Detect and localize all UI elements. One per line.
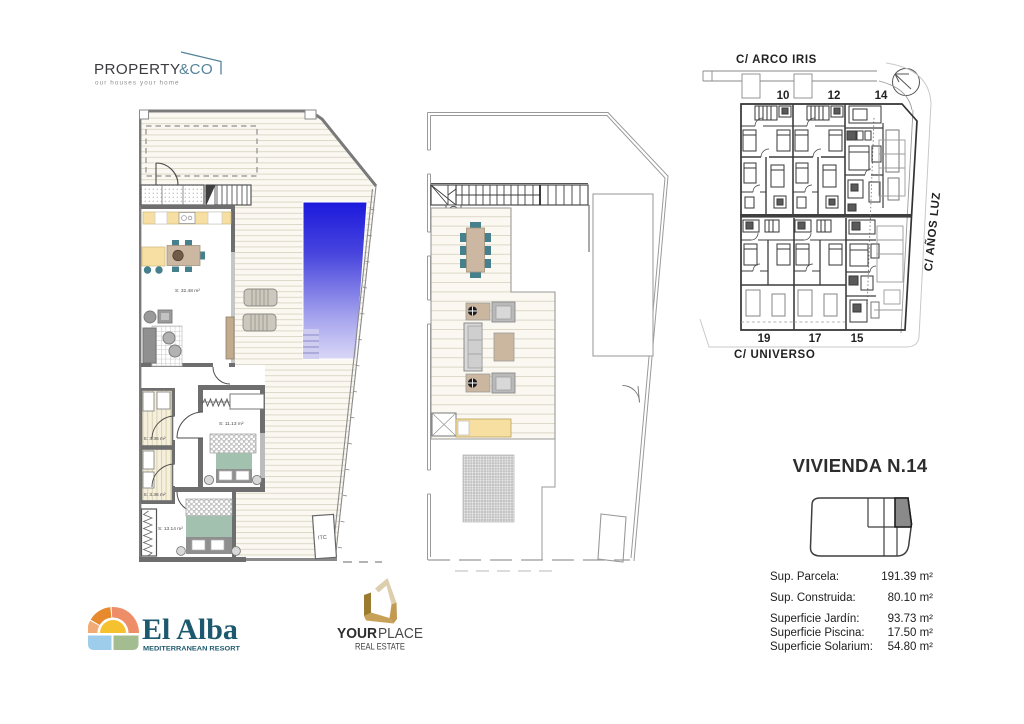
- svg-text:C/ AÑOS LUZ: C/ AÑOS LUZ: [922, 191, 943, 272]
- svg-text:PROPERTY: PROPERTY: [94, 61, 180, 78]
- svg-text:MEDITERRANEAN RESORT: MEDITERRANEAN RESORT: [143, 646, 240, 653]
- svg-text:S: 3.36 m²: S: 3.36 m²: [144, 436, 167, 442]
- svg-text:PLACE: PLACE: [378, 625, 423, 642]
- svg-text:S: 11.13 m²: S: 11.13 m²: [219, 421, 244, 427]
- svg-text:S: 3.36 m²: S: 3.36 m²: [144, 492, 167, 498]
- svg-text:ITC: ITC: [318, 535, 327, 542]
- svg-text:S: 32.48 m²: S: 32.48 m²: [175, 288, 200, 294]
- svg-text:14: 14: [875, 90, 888, 102]
- svg-text:17: 17: [809, 333, 822, 345]
- svg-text:&CO: &CO: [179, 61, 213, 78]
- svg-text:El Alba: El Alba: [142, 613, 238, 646]
- svg-text:S: 13.14 m²: S: 13.14 m²: [158, 526, 183, 532]
- svg-text:REAL ESTATE: REAL ESTATE: [355, 642, 405, 652]
- svg-text:YOUR: YOUR: [337, 625, 377, 642]
- svg-text:19: 19: [758, 333, 771, 345]
- svg-text:C/ ARCO IRIS: C/ ARCO IRIS: [736, 54, 817, 66]
- svg-text:C/ UNIVERSO: C/ UNIVERSO: [734, 349, 815, 361]
- svg-text:12: 12: [828, 90, 841, 102]
- svg-text:our houses your home: our houses your home: [95, 80, 180, 87]
- svg-text:10: 10: [777, 90, 790, 102]
- svg-text:15: 15: [851, 333, 864, 345]
